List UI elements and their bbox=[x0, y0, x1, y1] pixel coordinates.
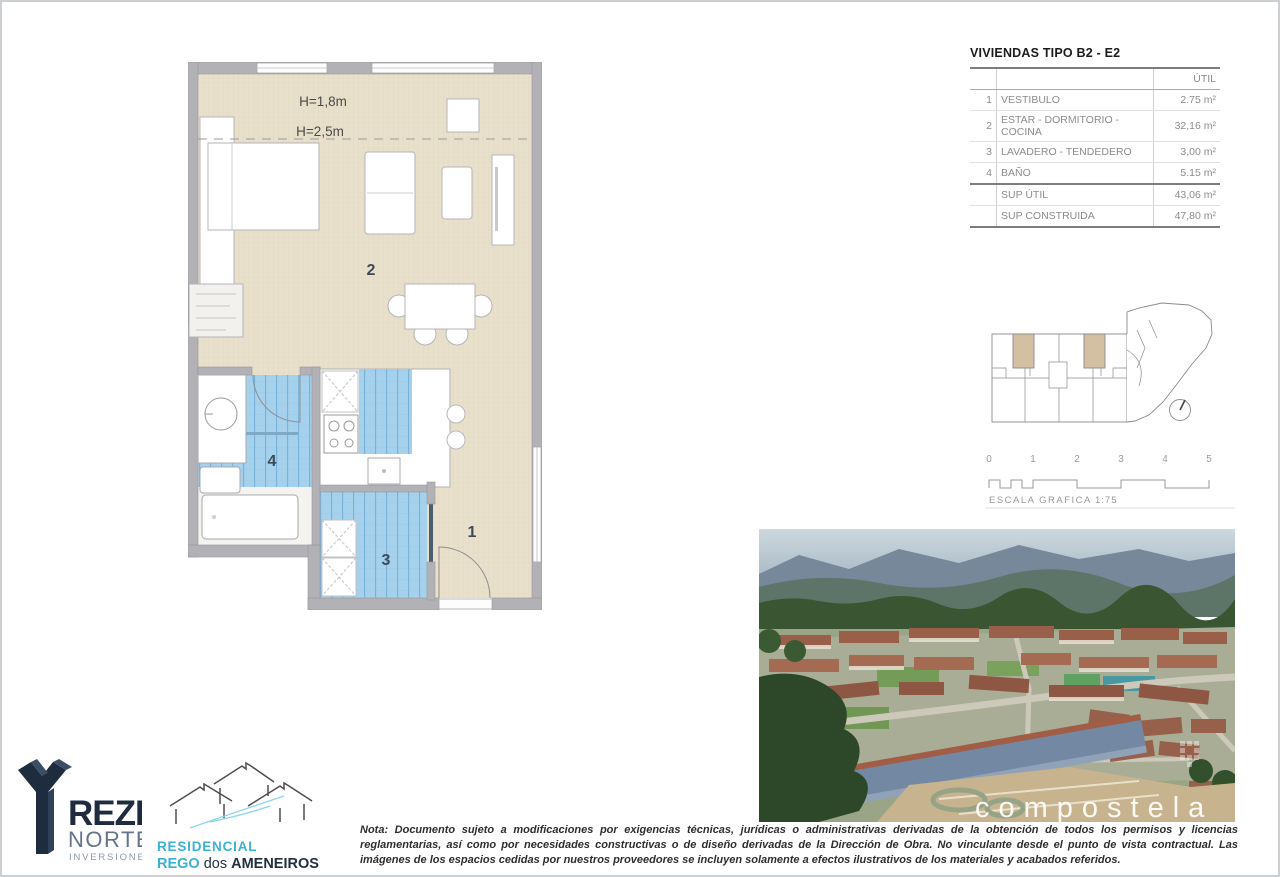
bed bbox=[208, 143, 319, 230]
entry-threshold bbox=[439, 599, 492, 609]
keyplan-diagram bbox=[987, 290, 1217, 444]
photo-watermark: compostela bbox=[975, 792, 1213, 822]
treze-inversiones-text: INVERSIONES bbox=[69, 852, 142, 863]
table-row: 4 BAÑO 5.15 m² bbox=[970, 163, 1220, 185]
highlighted-unit bbox=[1013, 334, 1034, 368]
legal-note: Nota: Documento sujeto a modificaciones … bbox=[360, 823, 1238, 869]
stool bbox=[447, 405, 465, 423]
height-label-2: H=2,5m bbox=[296, 124, 344, 139]
rego-text: REGO bbox=[157, 856, 200, 872]
scale-tick: 2 bbox=[1074, 454, 1080, 465]
sheet-title: VIVIENDAS TIPO B2 - E2 bbox=[970, 46, 1220, 60]
table-header-row: ÚTIL bbox=[970, 68, 1220, 90]
room-label-3: 3 bbox=[382, 552, 391, 569]
highlighted-unit bbox=[1084, 334, 1105, 368]
stool bbox=[447, 431, 465, 449]
floorplan-drawing: H=1,8m H=2,5m 2 4 3 1 bbox=[188, 62, 542, 610]
wardrobe bbox=[189, 284, 243, 337]
swoosh-icon bbox=[190, 796, 284, 828]
site-outline bbox=[1127, 303, 1212, 422]
vanity-counter bbox=[198, 375, 246, 463]
stove-icon bbox=[324, 415, 358, 453]
tv-unit bbox=[492, 155, 514, 245]
summary-row: SUP CONSTRUIDA 47,80 m² bbox=[970, 206, 1220, 228]
unit-area-table: VIVIENDAS TIPO B2 - E2 ÚTIL 1 VESTIBULO … bbox=[970, 46, 1220, 228]
sliding-door bbox=[429, 494, 433, 564]
room-label-2: 2 bbox=[367, 262, 376, 279]
bathtub-icon bbox=[202, 495, 298, 539]
ameneiros-text: AMENEIROS bbox=[231, 856, 319, 872]
kitchen-sink-icon bbox=[368, 458, 400, 484]
laundry-room bbox=[320, 492, 433, 598]
room-label-1: 1 bbox=[468, 524, 477, 541]
summary-row: SUP ÚTIL 43,06 m² bbox=[970, 184, 1220, 206]
height-label-1: H=1,8m bbox=[299, 94, 347, 109]
dos-text: dos bbox=[204, 856, 227, 872]
table-row: 3 LAVADERO - TENDEDERO 3,00 m² bbox=[970, 142, 1220, 163]
scale-tick: 4 bbox=[1162, 454, 1168, 465]
col-header-util: ÚTIL bbox=[1154, 68, 1221, 90]
towel-bar bbox=[246, 432, 298, 435]
scale-tick: 0 bbox=[986, 454, 992, 465]
kitchen-floor bbox=[359, 369, 412, 454]
toilet-icon bbox=[200, 467, 240, 493]
treze-norte-logo: REZE NORTE INVERSIONES bbox=[16, 758, 142, 864]
room-label-4: 4 bbox=[268, 453, 277, 470]
side-table bbox=[447, 99, 479, 132]
scale-tick: 5 bbox=[1206, 454, 1212, 465]
treze-norte-text: NORTE bbox=[68, 827, 142, 852]
scale-caption: ESCALA GRAFICA bbox=[989, 495, 1092, 506]
washer-dryer-icon bbox=[322, 520, 356, 596]
scale-tick: 3 bbox=[1118, 454, 1124, 465]
plan-sheet: H=1,8m H=2,5m 2 4 3 1 VIVIENDAS TIPO B2 … bbox=[0, 0, 1280, 877]
graphic-scale: 0 1 2 3 4 5 ESCALA GRAFICA 1:75 bbox=[985, 450, 1235, 510]
aerial-photo: compostela bbox=[759, 529, 1235, 822]
residencial-logo: RESIDENCIAL REGOdosAMENEIROS bbox=[152, 754, 320, 874]
scale-bar bbox=[989, 480, 1209, 488]
table-row: 2 ESTAR - DORMITORIO - COCINA 32,16 m² bbox=[970, 111, 1220, 142]
armchair bbox=[442, 167, 472, 219]
treze-y-logo-icon bbox=[18, 759, 72, 854]
scale-tick: 1 bbox=[1030, 454, 1036, 465]
kitchen bbox=[320, 369, 465, 487]
residencial-text: RESIDENCIAL bbox=[157, 839, 257, 854]
scale-ratio: 1:75 bbox=[1095, 495, 1118, 506]
table-row: 1 VESTIBULO 2.75 m² bbox=[970, 90, 1220, 111]
rego-dos-ameneiros-text: REGOdosAMENEIROS bbox=[157, 856, 319, 872]
fridge-cabinet-icon bbox=[322, 371, 358, 412]
